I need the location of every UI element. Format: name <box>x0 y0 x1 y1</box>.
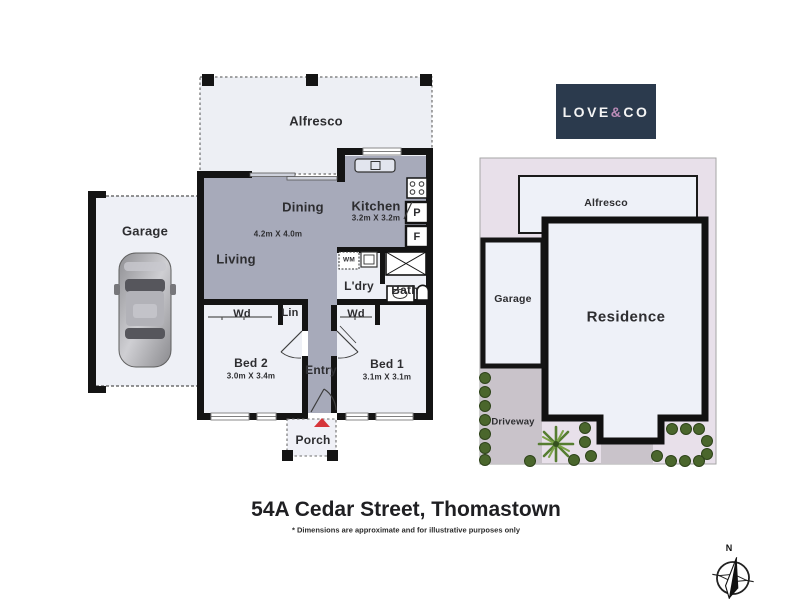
fixture-label-wd-bed2: Wd <box>233 308 251 320</box>
room-label-laundry: L'dry <box>344 279 374 293</box>
address-title: 54A Cedar Street, Thomastown <box>251 498 561 522</box>
floorplan-page: Alfresco Garage Dining 4.2m X 4.0m Kitch… <box>0 0 800 600</box>
brand-logo-ampersand: & <box>611 104 624 120</box>
site-label-residence: Residence <box>587 309 666 326</box>
kitchen-sink-icon <box>355 159 395 172</box>
brand-logo-love: LOVE <box>563 104 611 120</box>
room-label-bed1: Bed 1 <box>370 357 404 371</box>
room-label-bed2: Bed 2 <box>234 356 268 370</box>
room-label-entry: Entry <box>305 363 337 377</box>
fixture-label-pantry: P <box>413 207 421 219</box>
room-label-dining: Dining <box>282 200 324 215</box>
cooktop-icon <box>407 178 427 198</box>
brand-logo: LOVE&CO <box>556 84 656 139</box>
fixture-label-wd-bed1: Wd <box>347 308 365 320</box>
car-icon <box>114 253 176 367</box>
fixture-label-wm: WM <box>343 257 355 264</box>
compass-icon <box>709 554 758 600</box>
siteplan-residence <box>545 220 705 441</box>
dims-label-bed1: 3.1m X 3.1m <box>363 373 411 382</box>
room-label-living: Living <box>216 252 255 267</box>
site-label-alfresco: Alfresco <box>584 197 628 209</box>
site-label-driveway: Driveway <box>491 417 534 428</box>
room-label-bath: Bath <box>391 283 418 297</box>
fixture-label-linen: Lin <box>281 307 298 319</box>
palm-plant-icon <box>539 427 573 461</box>
compass-north-label: N <box>726 543 733 553</box>
dims-label-bed2: 3.0m X 3.4m <box>227 372 275 381</box>
site-label-garage: Garage <box>494 293 531 305</box>
laundry-tub-icon <box>361 252 377 267</box>
brand-logo-co: CO <box>623 104 649 120</box>
fixture-label-fridge: F <box>414 231 421 243</box>
dimensions-disclaimer: * Dimensions are approximate and for ill… <box>292 526 520 535</box>
room-label-porch: Porch <box>295 433 330 447</box>
dims-label-kitchen: 3.2m X 3.2m <box>352 214 400 223</box>
room-label-kitchen: Kitchen <box>351 199 400 214</box>
room-label-garage: Garage <box>122 224 168 239</box>
dims-label-dining: 4.2m X 4.0m <box>254 230 302 239</box>
shower-icon <box>386 252 426 275</box>
room-label-alfresco: Alfresco <box>289 114 343 129</box>
